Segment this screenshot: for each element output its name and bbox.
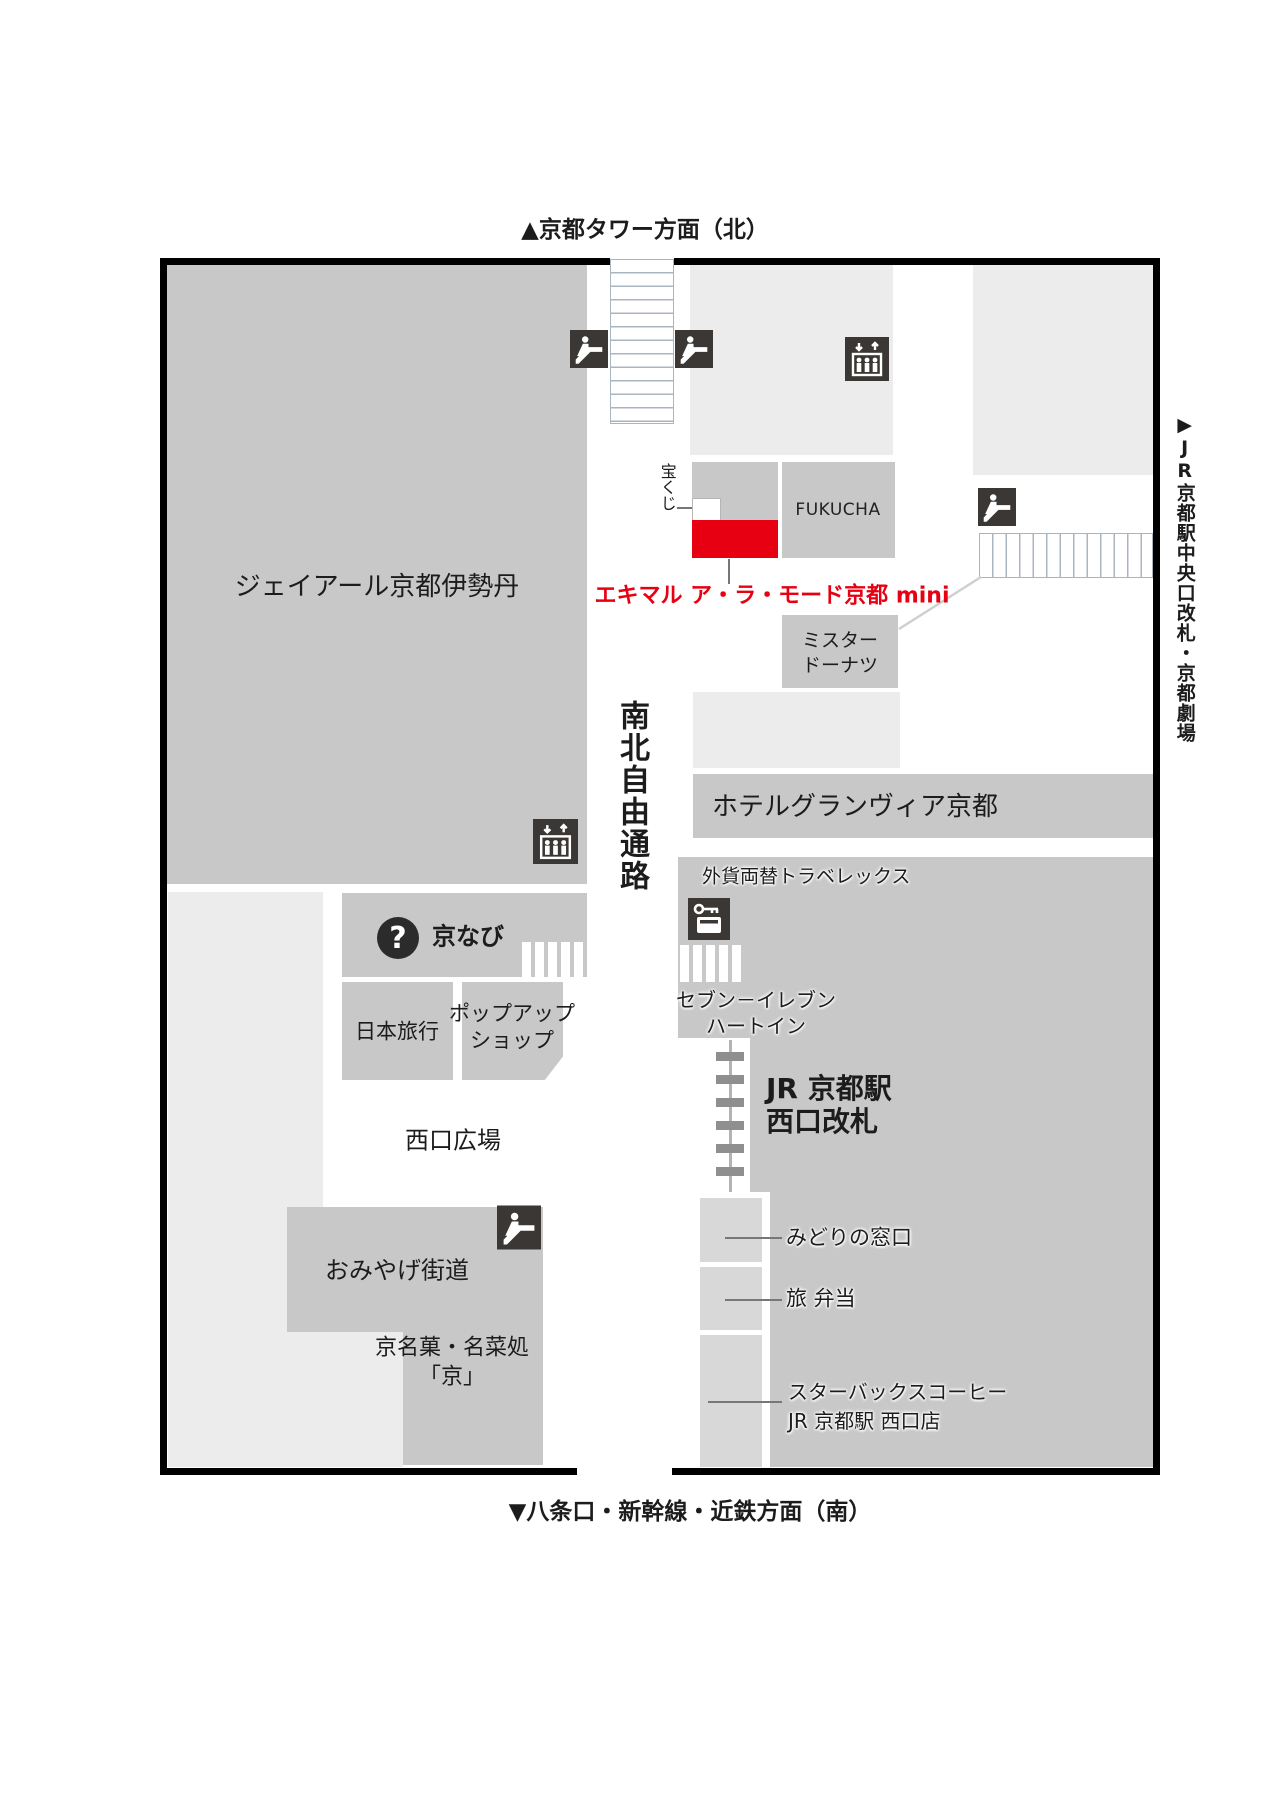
starbucks-panel — [700, 1335, 762, 1467]
starbucks-line1: スターバックスコーヒー — [788, 1378, 1007, 1407]
west-gate-line1: JR 京都駅 — [766, 1072, 892, 1105]
tabi-bento-panel — [700, 1267, 762, 1330]
west-gate-ticket-bars — [716, 1052, 744, 1183]
fukucha-label: FUKUCHA — [795, 499, 880, 521]
ekimaru-label: エキマル ア・ラ・モード京都 mini — [595, 583, 950, 612]
mister-donut-line1: ミスター — [802, 628, 878, 653]
omiyage-kaido-label: おみやげ街道 — [325, 1255, 469, 1286]
map-border-bottom-right — [672, 1468, 1160, 1475]
map-border-left — [160, 258, 167, 1475]
map-border-top-right — [674, 258, 1160, 265]
nihon-ryoko-label: 日本旅行 — [355, 1018, 439, 1045]
escalator-icon — [497, 1205, 541, 1250]
west-gate-label: JR 京都駅 西口改札 — [766, 1072, 892, 1138]
kyonavi-label: 京なび — [432, 921, 504, 952]
escalator-icon — [675, 330, 713, 368]
east-direction-label: ▶JR京都駅中央口改札・京都劇場 — [1172, 414, 1197, 743]
escalator-icon — [978, 488, 1016, 526]
currency-exchange-icon — [688, 898, 730, 940]
starbucks-line2: JR 京都駅 西口店 — [788, 1407, 1007, 1436]
south-direction-label: ▼八条口・新幹線・近鉄方面（南） — [509, 1498, 872, 1528]
corridor-label: 南北自由通路 — [612, 700, 651, 892]
tabi-bento-label: 旅 弁当 — [786, 1285, 856, 1312]
mister-donut-label: ミスター ドーナツ — [802, 628, 878, 677]
kyomeika-line2: 「京」 — [375, 1363, 529, 1392]
ekimaru-shop-highlight — [692, 520, 778, 558]
popup-shop-line1: ポップアップ — [449, 1001, 575, 1028]
escalator-icon — [570, 330, 608, 368]
isetan-label: ジェイアール京都伊勢丹 — [235, 571, 519, 605]
takarakuji-booth — [692, 498, 721, 521]
hotel-granvia-label: ホテルグランヴィア京都 — [712, 791, 998, 825]
seven-eleven-label: セブン－イレブン ハートイン — [676, 987, 836, 1039]
west-plaza-light-area — [168, 892, 323, 1467]
info-question-icon: ? — [377, 917, 419, 959]
popup-shop-line2: ショップ — [449, 1028, 575, 1055]
takarakuji-label: 宝くじ — [656, 463, 677, 511]
kyomeika-line1: 京名菓・名菜処 — [375, 1334, 529, 1363]
mister-donut-line2: ドーナツ — [802, 653, 878, 678]
starbucks-label: スターバックスコーヒー JR 京都駅 西口店 — [788, 1378, 1007, 1436]
elevator-icon — [533, 818, 578, 865]
mid-light-area — [693, 692, 900, 768]
midori-madoguchi-panel — [700, 1198, 762, 1262]
question-glyph: ? — [389, 921, 406, 956]
seven-eleven-stairs — [680, 945, 745, 982]
popup-shop-label: ポップアップ ショップ — [449, 1001, 575, 1056]
north-east-light-area — [973, 265, 1153, 475]
midori-madoguchi-label: みどりの窓口 — [786, 1224, 912, 1251]
north-direction-label: ▲京都タワー方面（北） — [521, 216, 769, 246]
elevator-icon — [845, 337, 889, 381]
travelex-label: 外貨両替トラベレックス — [702, 865, 910, 890]
seven-eleven-line1: セブン－イレブン — [676, 987, 836, 1013]
station-map-canvas: ? ▲京都タワー方面（北） ▼八条口・新幹線・近鉄方面（南） ▶JR京都駅中央口… — [0, 0, 1280, 1812]
north-stairs — [610, 259, 674, 424]
map-border-bottom-left — [160, 1468, 577, 1475]
map-border-right — [1153, 258, 1160, 1475]
kyonavi-stairs — [522, 942, 585, 978]
east-stairs — [979, 533, 1153, 578]
seven-eleven-line2: ハートイン — [676, 1013, 836, 1039]
map-border-top-left — [160, 258, 610, 265]
nishiguchi-hiroba-label: 西口広場 — [405, 1125, 501, 1156]
west-gate-line2: 西口改札 — [766, 1105, 892, 1138]
kyomeika-label: 京名菓・名菜処 「京」 — [375, 1334, 529, 1391]
